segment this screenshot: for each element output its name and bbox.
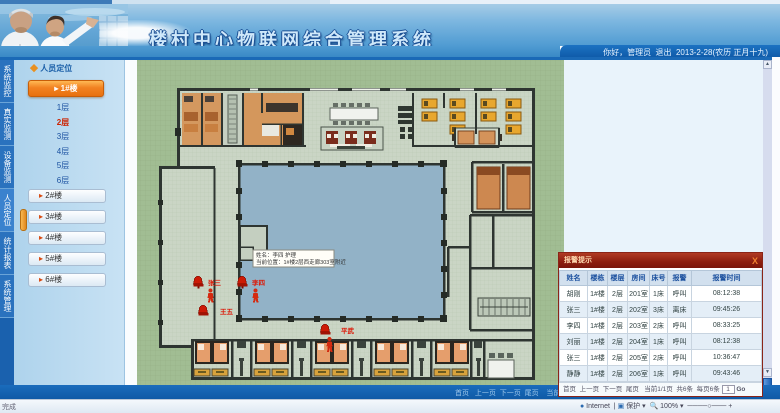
svg-text:李四: 李四 (251, 278, 266, 287)
svg-text:当前位置：1#楼2层西走廊303室附近: 当前位置：1#楼2层西走廊303室附近 (256, 258, 346, 266)
svg-text:张三: 张三 (208, 278, 222, 287)
svg-text:姓名：李四 护理: 姓名：李四 护理 (256, 251, 297, 259)
svg-text:王五: 王五 (220, 308, 234, 316)
svg-text:平武: 平武 (341, 326, 355, 335)
